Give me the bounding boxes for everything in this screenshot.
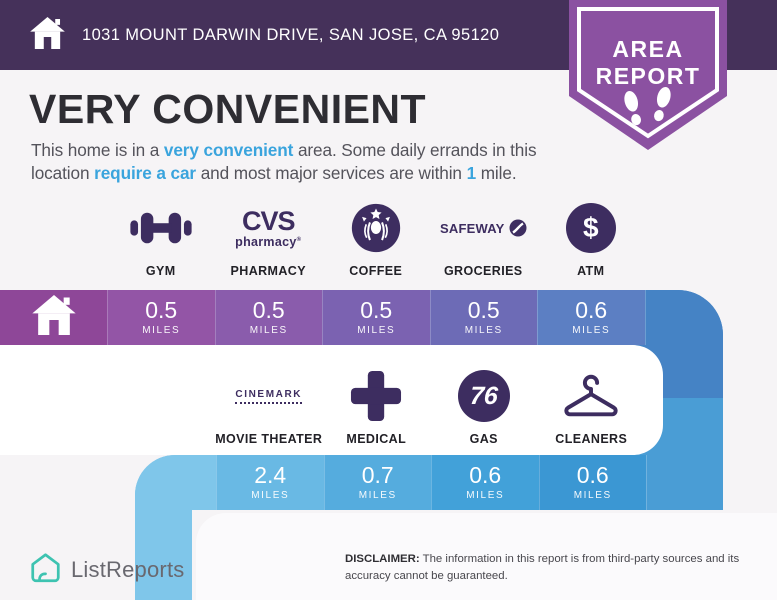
distance-value: 2.4 [254, 464, 286, 487]
amenity-label: GAS [470, 432, 498, 446]
disclaimer-text: DISCLAIMER: The information in this repo… [345, 551, 770, 584]
distance-unit: MILES [357, 325, 395, 336]
amenity-pharmacy: CVSpharmacy®PHARMACY [215, 200, 323, 278]
amenity-label: COFFEE [349, 264, 402, 278]
home-cell [0, 290, 107, 345]
dumbbell-icon [129, 200, 193, 256]
distance-band-row1: 0.5MILES0.5MILES0.5MILES0.5MILES0.6MILES [0, 290, 723, 345]
distance-cell-gas: 0.6MILES [431, 455, 539, 510]
amenity-label: MEDICAL [346, 432, 406, 446]
listreports-brand: ListReports [30, 552, 184, 588]
medical-cross-icon [350, 368, 402, 424]
distance-cell-cleaners: 0.6MILES [539, 455, 647, 510]
summary-text-segment: and most major services are within [196, 163, 467, 183]
distance-value: 0.5 [360, 299, 392, 322]
distance-cell-gym: 0.5MILES [107, 290, 215, 345]
distance-cell-groceries: 0.5MILES [430, 290, 538, 345]
summary-highlight: 1 [467, 163, 476, 183]
distance-value: 0.5 [253, 299, 285, 322]
amenity-gym: GYM [107, 200, 215, 278]
page-title: VERY CONVENIENT [29, 86, 426, 133]
amenity-groceries: SAFEWAY GROCERIES [430, 200, 538, 278]
summary-text-segment: This home is in a [31, 140, 164, 160]
disclaimer-label: DISCLAIMER: [345, 553, 420, 565]
distance-cells-row1: 0.5MILES0.5MILES0.5MILES0.5MILES0.6MILES [107, 290, 645, 345]
amenity-medical: MEDICAL [323, 368, 431, 446]
home-icon [32, 295, 76, 340]
amenity-movie-theater: CINEMARKMOVIE THEATER [215, 368, 323, 446]
distance-value: 0.6 [577, 464, 609, 487]
amenities-row2: CINEMARKMOVIE THEATER MEDICAL76GAS CLEAN… [215, 368, 646, 446]
distance-unit: MILES [572, 325, 610, 336]
amenity-coffee: COFFEE [322, 200, 430, 278]
cinemark-logo: CINEMARK [235, 368, 302, 424]
distance-cells-row2: 2.4MILES0.7MILES0.6MILES0.6MILES [216, 455, 646, 510]
distance-unit: MILES [465, 325, 503, 336]
distance-value: 0.6 [575, 299, 607, 322]
76-logo: 76 [458, 368, 510, 424]
ribbon-tail [135, 455, 216, 510]
cvs-pharmacy-logo: CVSpharmacy® [235, 200, 301, 256]
distance-unit: MILES [574, 490, 612, 501]
summary-highlight: very convenient [164, 140, 293, 160]
property-address: 1031 MOUNT DARWIN DRIVE, SAN JOSE, CA 95… [82, 26, 499, 45]
amenity-label: MOVIE THEATER [215, 432, 322, 446]
distance-unit: MILES [251, 490, 289, 501]
distance-value: 0.7 [362, 464, 394, 487]
distance-cell-movie-theater: 2.4MILES [216, 455, 324, 510]
amenity-label: ATM [577, 264, 604, 278]
ribbon-filler [646, 455, 723, 510]
summary-paragraph: This home is in a very convenient area. … [31, 139, 576, 185]
ribbon-filler [645, 290, 724, 345]
distance-cell-atm: 0.6MILES [537, 290, 645, 345]
amenity-label: GYM [146, 264, 176, 278]
area-report-page: 0.5MILES0.5MILES0.5MILES0.5MILES0.6MILES… [0, 0, 777, 600]
area-report-badge: AREA REPORT [569, 0, 727, 154]
hanger-icon [560, 368, 622, 424]
badge-line1: AREA [612, 36, 683, 62]
amenity-label: PHARMACY [231, 264, 306, 278]
amenities-row1: GYMCVSpharmacy®PHARMACY COFFEESAFEWAY GR… [107, 200, 645, 278]
distance-cell-pharmacy: 0.5MILES [215, 290, 323, 345]
amenity-atm: $ATM [537, 200, 645, 278]
distance-unit: MILES [142, 325, 180, 336]
house-outline-icon [30, 552, 61, 588]
distance-value: 0.6 [469, 464, 501, 487]
home-icon [30, 17, 65, 54]
starbucks-logo [350, 200, 402, 256]
amenity-cleaners: CLEANERS [538, 368, 646, 446]
safeway-logo: SAFEWAY [440, 200, 527, 256]
distance-unit: MILES [466, 490, 504, 501]
distance-unit: MILES [250, 325, 288, 336]
amenity-label: CLEANERS [555, 432, 627, 446]
distance-value: 0.5 [145, 299, 177, 322]
badge-line2: REPORT [596, 63, 701, 89]
summary-text-segment: mile. [476, 163, 516, 183]
distance-unit: MILES [359, 490, 397, 501]
dollar-circle-icon: $ [566, 200, 616, 256]
distance-value: 0.5 [468, 299, 500, 322]
distance-cell-coffee: 0.5MILES [322, 290, 430, 345]
amenity-label: GROCERIES [444, 264, 523, 278]
summary-highlight: require a car [94, 163, 196, 183]
distance-band-row2: 2.4MILES0.7MILES0.6MILES0.6MILES [135, 455, 723, 510]
distance-cell-medical: 0.7MILES [324, 455, 432, 510]
brand-name: ListReports [71, 557, 184, 583]
amenity-gas: 76GAS [430, 368, 538, 446]
